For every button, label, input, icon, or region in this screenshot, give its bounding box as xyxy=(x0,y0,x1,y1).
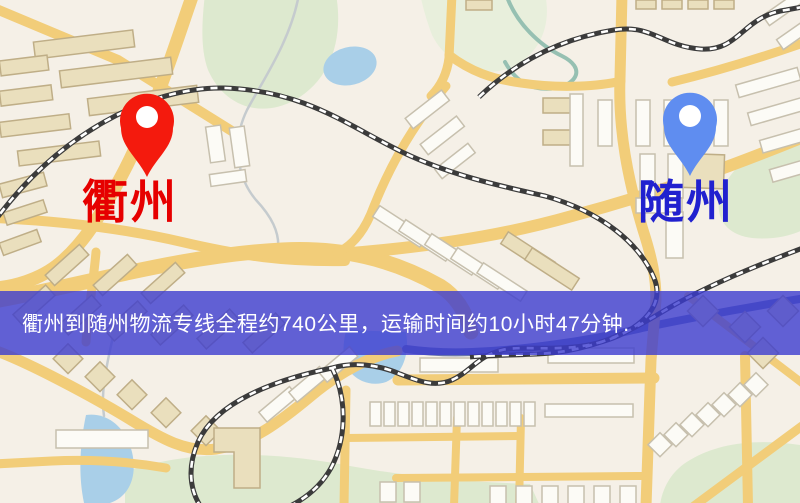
destination-city-label: 随州 xyxy=(638,179,734,225)
map-screenshot: 衢州 随州 衢州到随州物流专线全程约740公里，运输时间约10小时47分钟. xyxy=(0,0,800,503)
pin-hole xyxy=(679,105,701,127)
pin-hole xyxy=(136,106,158,128)
map-image xyxy=(0,0,800,503)
route-info-banner: 衢州到随州物流专线全程约740公里，运输时间约10小时47分钟. xyxy=(0,291,800,355)
origin-city-label: 衢州 xyxy=(82,179,178,225)
route-info-text: 衢州到随州物流专线全程约740公里，运输时间约10小时47分钟. xyxy=(0,308,630,338)
